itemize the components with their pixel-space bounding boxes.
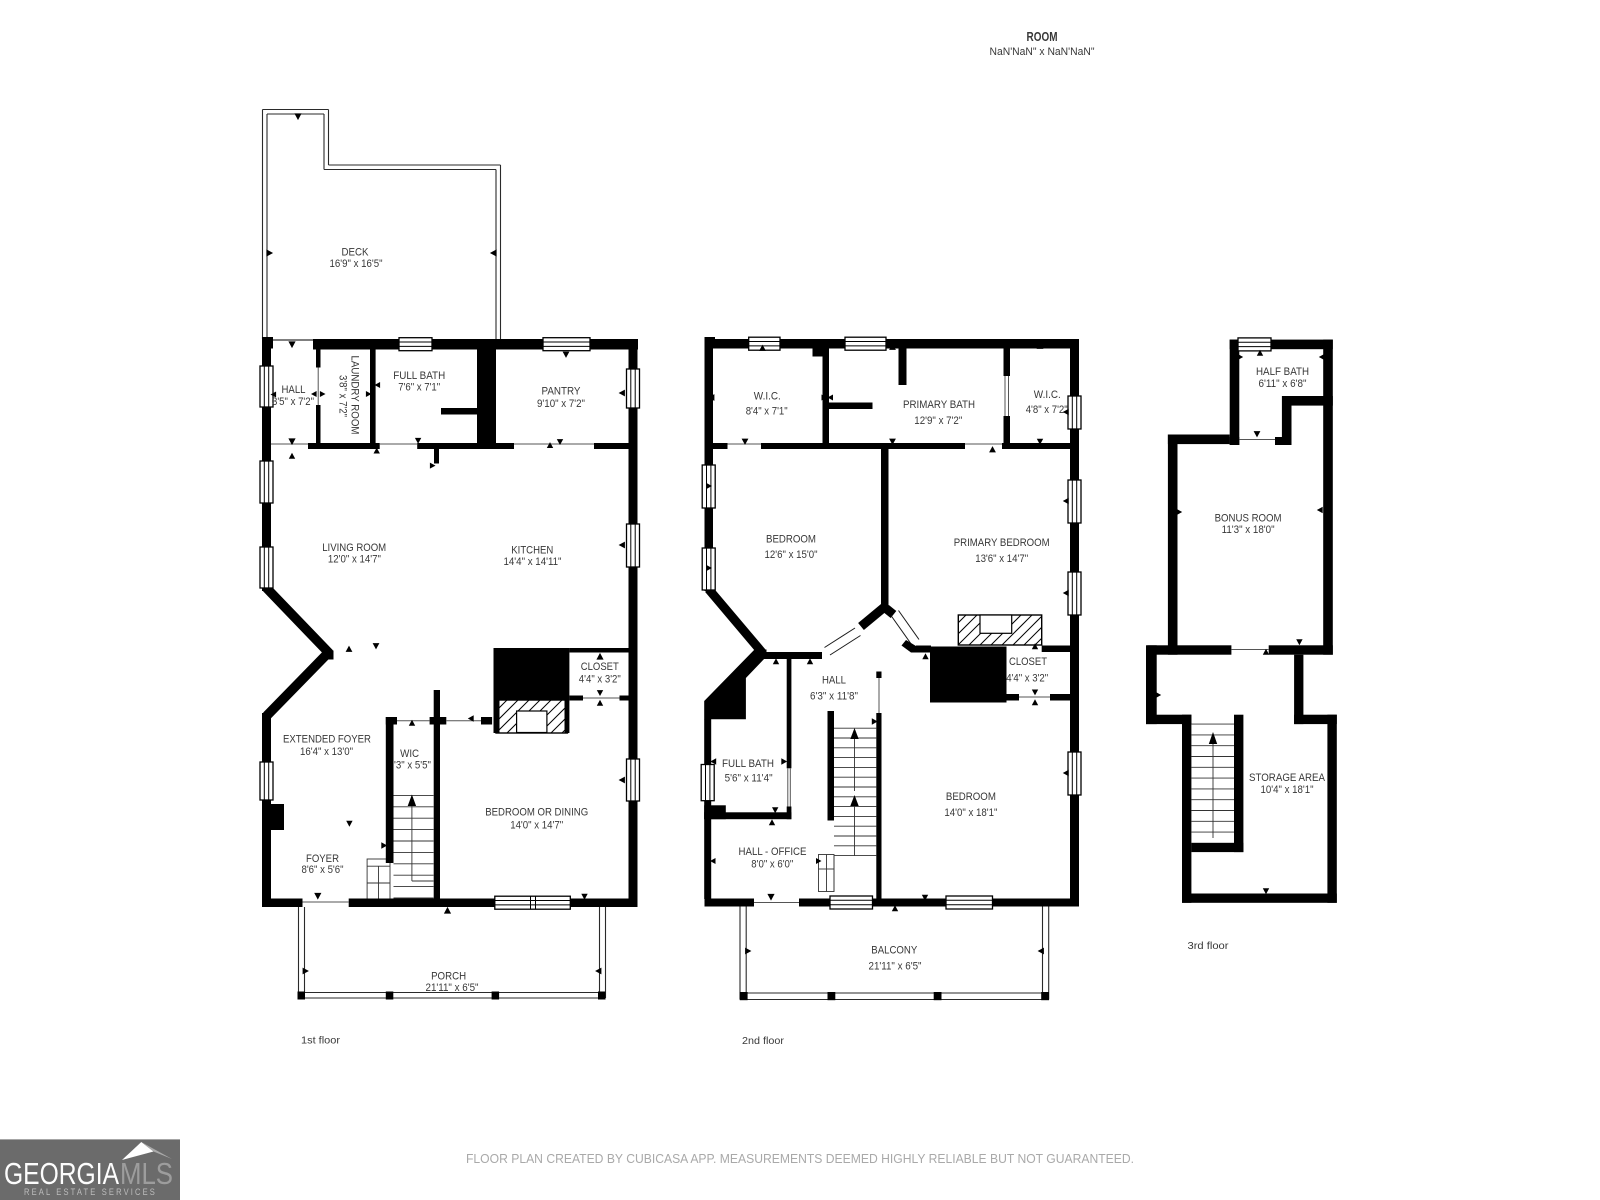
svg-text:8'6" x 5'6": 8'6" x 5'6" [302, 864, 344, 876]
svg-text:1st floor: 1st floor [301, 1035, 341, 1047]
svg-text:10'4" x 18'1": 10'4" x 18'1" [1261, 784, 1314, 796]
svg-text:14'0" x 14'7": 14'0" x 14'7" [510, 820, 563, 832]
svg-text:13'6" x 14'7": 13'6" x 14'7" [975, 553, 1028, 565]
svg-text:GEORGIA: GEORGIA [4, 1157, 120, 1191]
svg-text:REAL ESTATE SERVICES: REAL ESTATE SERVICES [24, 1187, 157, 1197]
svg-text:HALL: HALL [282, 384, 306, 396]
svg-text:BEDROOM: BEDROOM [946, 791, 996, 803]
svg-text:BONUS ROOM: BONUS ROOM [1215, 513, 1282, 525]
svg-text:16'9" x 16'5": 16'9" x 16'5" [330, 258, 383, 270]
svg-text:3rd floor: 3rd floor [1188, 940, 1230, 952]
svg-text:4'4" x 3'2": 4'4" x 3'2" [1006, 673, 1048, 685]
svg-text:CLOSET: CLOSET [581, 661, 619, 673]
svg-text:12'6" x 15'0": 12'6" x 15'0" [765, 549, 818, 561]
svg-text:CLOSET: CLOSET [1009, 656, 1047, 668]
svg-text:14'0" x 18'1": 14'0" x 18'1" [944, 807, 997, 819]
svg-text:PRIMARY BATH: PRIMARY BATH [903, 399, 975, 411]
svg-text:DECK: DECK [342, 247, 370, 259]
svg-text:NaN'NaN" x NaN'NaN": NaN'NaN" x NaN'NaN" [990, 46, 1095, 58]
svg-text:BEDROOM: BEDROOM [766, 533, 816, 545]
svg-text:'3" x 5'5": '3" x 5'5" [394, 760, 431, 772]
svg-text:FULL BATH: FULL BATH [722, 758, 774, 770]
svg-text:16'4" x 13'0": 16'4" x 13'0" [300, 746, 353, 758]
svg-text:21'11" x 6'5": 21'11" x 6'5" [869, 961, 922, 973]
svg-text:HALF BATH: HALF BATH [1256, 366, 1309, 378]
svg-text:7'6" x 7'1": 7'6" x 7'1" [398, 382, 440, 394]
svg-text:PORCH: PORCH [431, 971, 466, 983]
svg-text:4'8" x 7'2": 4'8" x 7'2" [1026, 404, 1068, 416]
svg-text:HALL: HALL [822, 675, 846, 687]
svg-text:11'3" x 18'0": 11'3" x 18'0" [1222, 524, 1275, 536]
svg-text:ROOM: ROOM [1027, 30, 1058, 44]
svg-text:EXTENDED FOYER: EXTENDED FOYER [283, 734, 371, 746]
svg-text:9'10" x 7'2": 9'10" x 7'2" [537, 398, 585, 410]
svg-text:4'4" x 3'2": 4'4" x 3'2" [579, 673, 621, 685]
svg-text:KITCHEN: KITCHEN [511, 545, 553, 557]
svg-text:PANTRY: PANTRY [542, 386, 581, 398]
svg-text:BALCONY: BALCONY [871, 945, 917, 957]
svg-text:14'4" x 14'11": 14'4" x 14'11" [504, 556, 562, 568]
svg-text:6'3" x 11'8": 6'3" x 11'8" [810, 691, 858, 703]
svg-text:W.I.C.: W.I.C. [1034, 389, 1061, 401]
svg-text:12'9" x 7'2": 12'9" x 7'2" [914, 415, 962, 427]
svg-text:3'5" x 7'2": 3'5" x 7'2" [272, 396, 314, 408]
svg-text:5'6" x 11'4": 5'6" x 11'4" [725, 773, 773, 785]
svg-text:STORAGE AREA: STORAGE AREA [1249, 772, 1326, 784]
svg-text:3'8" x 7'2": 3'8" x 7'2" [337, 375, 349, 417]
svg-text:FULL BATH: FULL BATH [393, 370, 445, 382]
svg-text:21'11" x 6'5": 21'11" x 6'5" [426, 982, 479, 994]
svg-text:MLS: MLS [120, 1157, 173, 1191]
svg-text:12'0" x 14'7": 12'0" x 14'7" [328, 554, 381, 566]
svg-text:W.I.C.: W.I.C. [754, 391, 781, 403]
svg-text:FLOOR PLAN CREATED BY CUBICASA: FLOOR PLAN CREATED BY CUBICASA APP. MEAS… [466, 1151, 1134, 1166]
svg-text:8'4" x 7'1": 8'4" x 7'1" [746, 406, 788, 418]
svg-text:8'0" x 6'0": 8'0" x 6'0" [751, 858, 793, 870]
svg-text:LAUNDRY ROOM: LAUNDRY ROOM [349, 356, 361, 435]
svg-text:PRIMARY BEDROOM: PRIMARY BEDROOM [954, 537, 1050, 549]
svg-text:WIC: WIC [400, 748, 419, 760]
svg-text:LIVING ROOM: LIVING ROOM [322, 542, 386, 554]
svg-text:6'11" x 6'8": 6'11" x 6'8" [1259, 378, 1307, 390]
svg-text:2nd floor: 2nd floor [742, 1035, 785, 1047]
svg-text:BEDROOM OR DINING: BEDROOM OR DINING [485, 807, 588, 819]
svg-text:HALL - OFFICE: HALL - OFFICE [739, 846, 807, 858]
